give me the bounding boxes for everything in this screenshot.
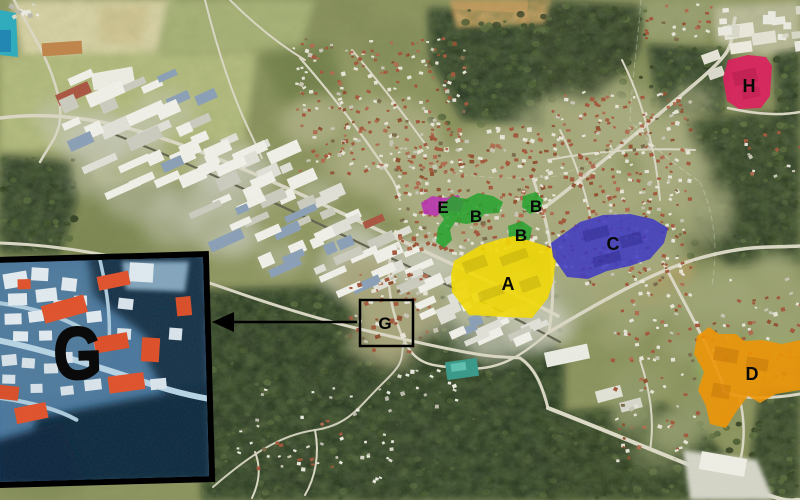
svg-text:G: G	[378, 314, 391, 333]
svg-text:G: G	[52, 312, 103, 396]
